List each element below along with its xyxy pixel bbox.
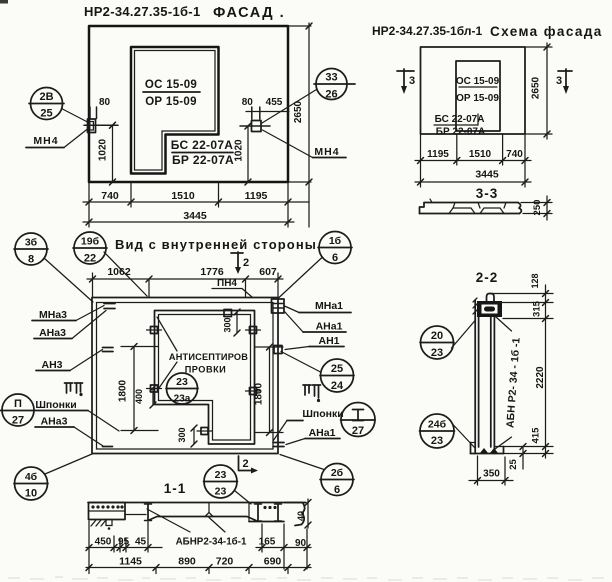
svg-text:23: 23 <box>431 347 443 359</box>
svg-text:2б: 2б <box>331 467 344 479</box>
svg-text:300: 300 <box>177 427 187 442</box>
svg-text:720: 720 <box>216 556 234 568</box>
svg-text:АН1: АН1 <box>318 335 339 347</box>
svg-text:33: 33 <box>325 72 337 84</box>
svg-text:250: 250 <box>532 200 543 216</box>
svg-text:МН4: МН4 <box>33 135 58 147</box>
svg-text:АНа3: АНа3 <box>39 327 66 339</box>
svg-text:3: 3 <box>409 75 415 87</box>
svg-text:300: 300 <box>223 317 233 332</box>
svg-text:1020: 1020 <box>234 139 245 162</box>
svg-text:315: 315 <box>532 300 543 317</box>
svg-text:22: 22 <box>84 253 96 265</box>
svg-text:23: 23 <box>176 376 188 388</box>
svg-text:165: 165 <box>259 537 276 548</box>
svg-text:740: 740 <box>101 190 119 202</box>
svg-text:БР 22-07А: БР 22-07А <box>436 127 485 138</box>
svg-text:23: 23 <box>215 469 227 481</box>
svg-text:455: 455 <box>266 97 283 108</box>
svg-text:890: 890 <box>178 556 196 568</box>
svg-text:128: 128 <box>530 273 540 288</box>
svg-text:ОС 15-09: ОС 15-09 <box>145 79 197 91</box>
svg-text:450: 450 <box>95 537 112 548</box>
svg-text:3-3: 3-3 <box>476 186 499 201</box>
svg-text:1-1: 1-1 <box>164 481 187 496</box>
svg-text:25: 25 <box>331 363 343 375</box>
svg-text:4б: 4б <box>25 471 38 483</box>
svg-text:МН4: МН4 <box>314 146 339 158</box>
svg-text:БР 22-07А: БР 22-07А <box>172 153 234 167</box>
svg-text:8: 8 <box>28 254 34 266</box>
svg-text:45: 45 <box>135 537 147 548</box>
svg-text:НР2-34.27.35-1б-1: НР2-34.27.35-1б-1 <box>84 4 200 19</box>
svg-text:АНа1: АНа1 <box>316 321 343 333</box>
svg-text:3: 3 <box>556 75 562 87</box>
svg-text:27: 27 <box>352 425 364 437</box>
svg-text:24: 24 <box>331 380 344 392</box>
svg-text:24б: 24б <box>428 419 447 431</box>
svg-text:1800: 1800 <box>254 382 265 405</box>
svg-text:2В: 2В <box>39 91 53 103</box>
svg-text:ОС 15-09: ОС 15-09 <box>456 76 500 87</box>
svg-text:АНа3: АНа3 <box>41 416 68 428</box>
svg-text:6: 6 <box>334 484 340 496</box>
svg-text:740: 740 <box>506 149 523 160</box>
svg-text:ПРОВКИ: ПРОВКИ <box>185 365 227 375</box>
svg-text:27: 27 <box>12 415 24 427</box>
svg-text:АНа1: АНа1 <box>309 427 336 439</box>
svg-text:400: 400 <box>134 389 144 404</box>
svg-text:3б: 3б <box>25 237 38 249</box>
svg-text:1145: 1145 <box>119 556 142 568</box>
svg-text:Шпонки: Шпонки <box>302 408 343 420</box>
svg-text:2650: 2650 <box>531 76 542 99</box>
svg-text:1020: 1020 <box>98 138 109 161</box>
svg-text:2220: 2220 <box>535 366 546 389</box>
svg-text:АБНР2-34-1б-1: АБНР2-34-1б-1 <box>176 537 247 548</box>
svg-text:10: 10 <box>25 488 37 500</box>
svg-text:Шпонки: Шпонки <box>35 399 76 411</box>
svg-text:690: 690 <box>264 556 282 568</box>
svg-text:1062: 1062 <box>107 266 131 278</box>
svg-text:1510: 1510 <box>469 149 492 160</box>
svg-text:23: 23 <box>215 486 227 498</box>
svg-text:20: 20 <box>431 330 443 342</box>
svg-text:1776: 1776 <box>200 266 224 278</box>
svg-text:3445: 3445 <box>475 169 499 181</box>
svg-text:1800: 1800 <box>118 379 129 402</box>
svg-text:БС 22-07А: БС 22-07А <box>171 138 234 152</box>
svg-text:МНа3: МНа3 <box>39 309 67 321</box>
svg-text:АН3: АН3 <box>41 359 62 371</box>
svg-text:ОР 15-09: ОР 15-09 <box>456 93 499 104</box>
svg-text:6: 6 <box>332 252 338 264</box>
svg-text:БС 22-07А: БС 22-07А <box>435 114 485 125</box>
svg-text:350: 350 <box>483 469 500 480</box>
svg-text:Схема фасада: Схема фасада <box>490 24 603 39</box>
svg-text:2: 2 <box>243 458 249 470</box>
svg-text:Вид с внутренней стороны: Вид с внутренней стороны <box>115 237 317 252</box>
svg-text:3445: 3445 <box>183 210 207 222</box>
svg-text:40: 40 <box>296 511 306 521</box>
svg-text:1б: 1б <box>329 235 342 247</box>
svg-text:607: 607 <box>259 266 277 278</box>
svg-text:2: 2 <box>243 257 249 269</box>
svg-text:415: 415 <box>531 427 542 444</box>
svg-text:НР2-34.27.35-1бл-1: НР2-34.27.35-1бл-1 <box>372 24 482 38</box>
svg-text:2-2: 2-2 <box>476 270 499 285</box>
svg-text:2650: 2650 <box>293 100 304 123</box>
svg-text:19б: 19б <box>81 236 100 248</box>
svg-text:ФАСАД .: ФАСАД . <box>213 5 285 21</box>
svg-text:П: П <box>14 398 22 410</box>
svg-text:1195: 1195 <box>427 149 449 160</box>
svg-text:26: 26 <box>325 89 337 101</box>
svg-text:ПН4: ПН4 <box>217 278 237 289</box>
svg-text:23: 23 <box>431 435 443 447</box>
svg-text:23а: 23а <box>174 394 191 405</box>
svg-text:25: 25 <box>508 459 519 470</box>
svg-text:1510: 1510 <box>171 190 195 202</box>
svg-text:АНТИСЕПТИРОВ: АНТИСЕПТИРОВ <box>169 352 248 362</box>
svg-text:80: 80 <box>99 97 111 108</box>
svg-text:МНа1: МНа1 <box>315 300 343 312</box>
svg-text:25: 25 <box>40 108 52 120</box>
svg-text:ОР 15-09: ОР 15-09 <box>145 96 197 108</box>
svg-text:1195: 1195 <box>245 190 268 202</box>
